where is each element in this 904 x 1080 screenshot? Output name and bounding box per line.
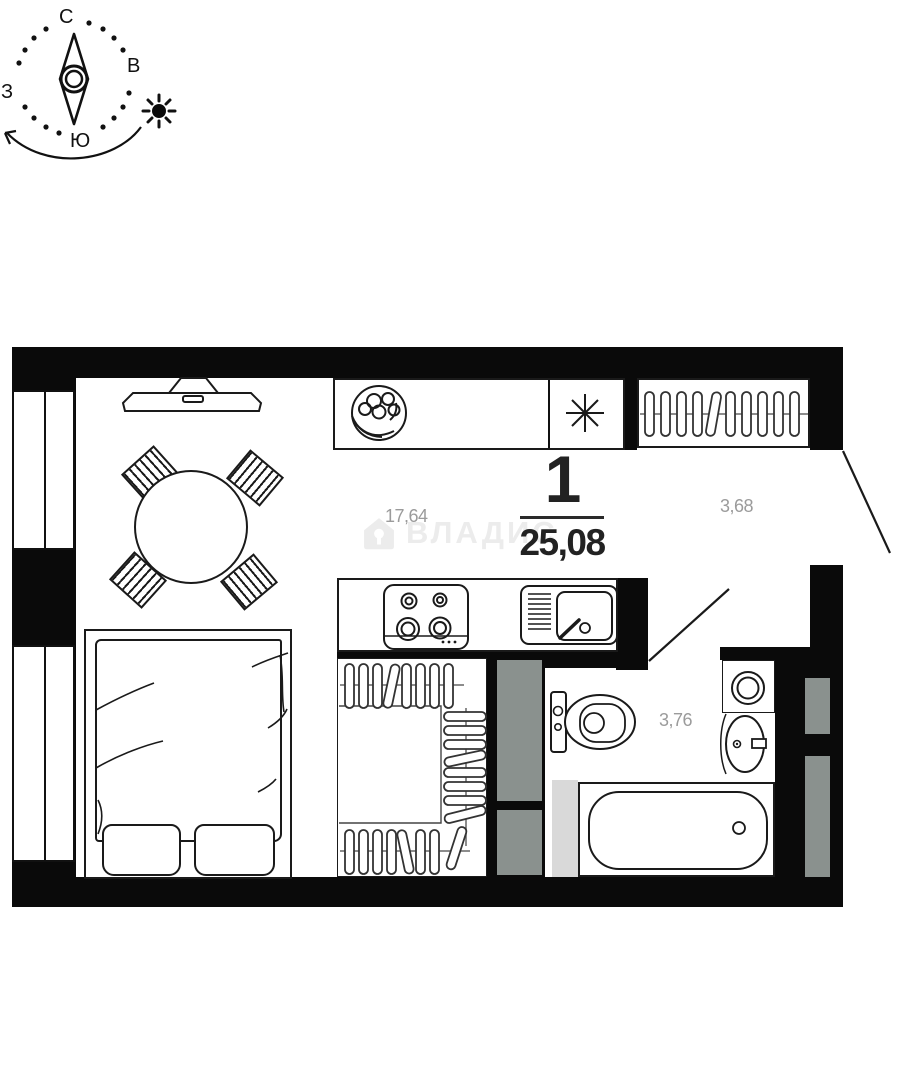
vent-shaft xyxy=(805,678,830,734)
window-mullion xyxy=(44,647,46,860)
entrance-door-swing xyxy=(843,451,890,553)
compass-east-label: В xyxy=(127,55,140,78)
walk-in-closet xyxy=(337,658,487,877)
washing-machine-niche xyxy=(722,660,775,713)
wall-right-mid xyxy=(810,565,843,660)
bed-pillow xyxy=(102,824,181,876)
vent-shaft xyxy=(497,660,542,801)
floor-plan-page: С В З Ю xyxy=(0,0,904,1080)
compass-north-label: С xyxy=(59,6,73,29)
counter-divider xyxy=(548,380,550,448)
bath-side-panel xyxy=(552,780,578,877)
wall-top xyxy=(12,347,843,378)
bathroom-area-label: 3,76 xyxy=(659,710,692,731)
wall-right-upper xyxy=(810,347,843,450)
dining-table xyxy=(134,470,248,584)
compass-west-label: З xyxy=(1,81,13,104)
sun-icon xyxy=(143,95,175,127)
bathroom-sink xyxy=(721,714,766,774)
hallway-coat-rack xyxy=(637,378,810,448)
compass-needle-icon xyxy=(60,34,88,124)
wall-closet-bathroom xyxy=(487,655,545,877)
bathroom-door-swing xyxy=(649,589,729,661)
compass-dots xyxy=(16,20,131,135)
wall-washer-niche-top xyxy=(720,647,843,660)
window xyxy=(12,390,75,550)
vent-shaft xyxy=(497,810,542,875)
bed-blanket xyxy=(95,639,282,842)
window xyxy=(12,645,75,862)
fraction-line xyxy=(520,516,604,519)
living-area-label: 17,64 xyxy=(385,506,428,527)
toilet xyxy=(551,692,635,752)
hallway-area-label: 3,68 xyxy=(720,496,753,517)
wall-bottom xyxy=(12,877,843,907)
wall-bathroom-right xyxy=(775,660,843,877)
bed-pillow xyxy=(194,824,275,876)
apartment-summary: 1 25,08 xyxy=(503,447,621,564)
vent-shaft xyxy=(805,756,830,877)
kitchen-counter xyxy=(337,578,618,652)
compass-south-label: Ю xyxy=(70,130,90,153)
tv xyxy=(123,378,261,411)
rooms-count: 1 xyxy=(503,447,621,512)
window-mullion xyxy=(44,392,46,548)
kitchen-top-counter xyxy=(333,378,625,450)
total-area: 25,08 xyxy=(503,522,621,564)
bathtub xyxy=(578,782,775,877)
